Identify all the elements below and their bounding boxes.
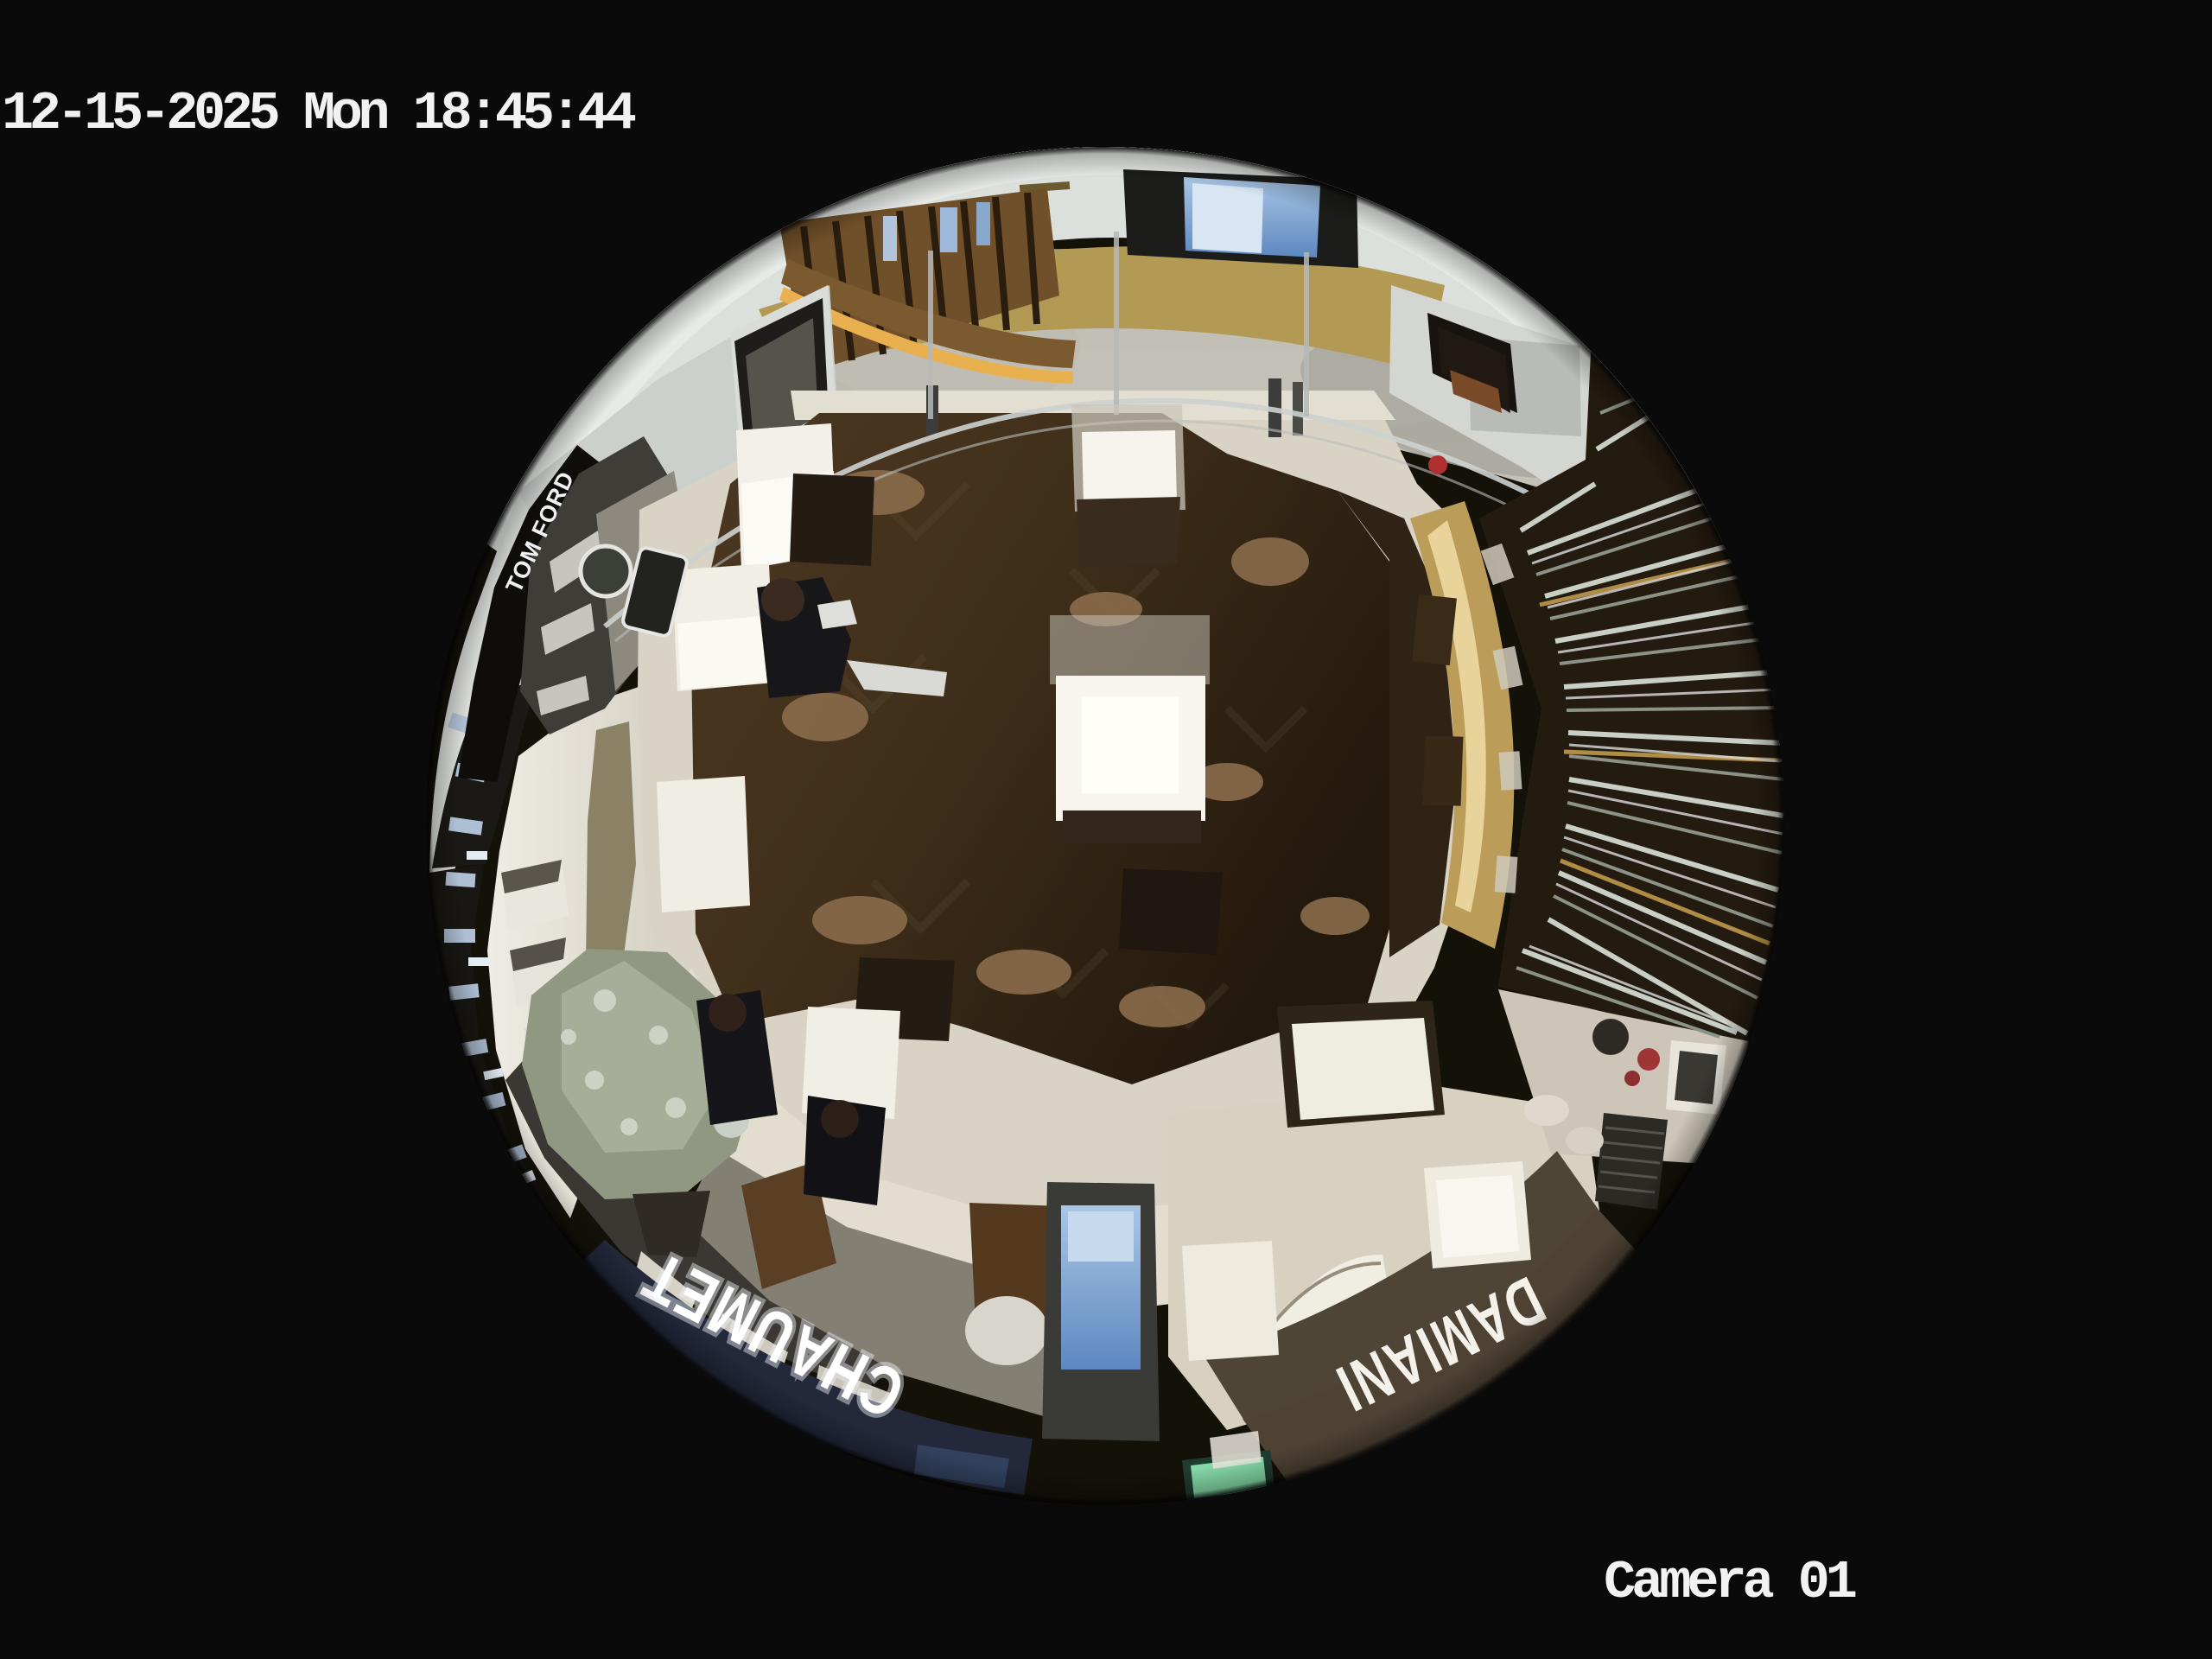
svg-text:12-15-2025 Mon 18:45:44: 12-15-2025 Mon 18:45:44 bbox=[2, 83, 637, 144]
svg-text:Camera 01: Camera 01 bbox=[1604, 1552, 1858, 1613]
